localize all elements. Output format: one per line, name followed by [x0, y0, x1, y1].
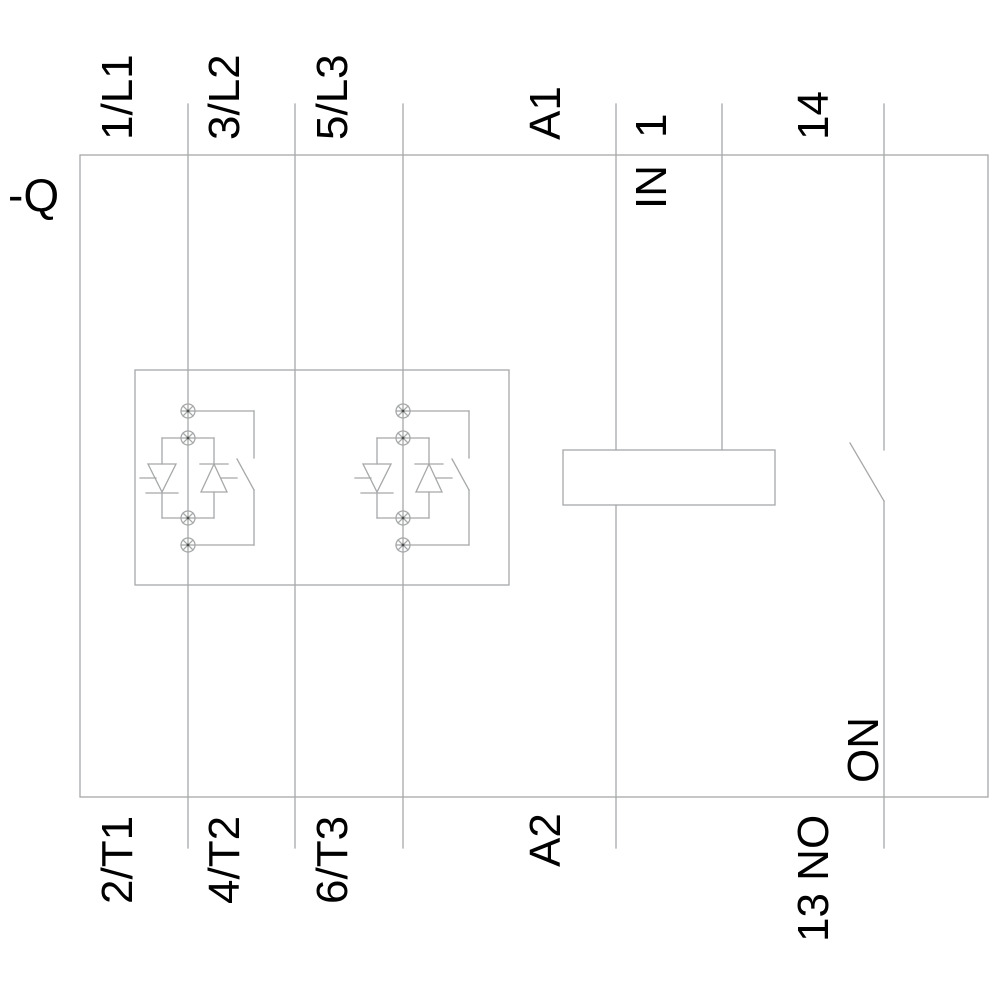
function-label-on: ON — [842, 717, 886, 783]
terminal-label-4t2: 4/T2 — [203, 816, 247, 904]
device-designation-label: -Q — [8, 172, 59, 218]
terminal-label-14: 14 — [792, 91, 836, 140]
terminal-label-5l3: 5/L3 — [311, 54, 355, 140]
control-block — [563, 450, 775, 505]
terminal-label-a2: A2 — [524, 813, 568, 867]
thyristor-module-phase3 — [355, 404, 469, 552]
terminal-label-2t1: 2/T1 — [96, 816, 140, 904]
terminal-label-3l2: 3/L2 — [203, 54, 247, 140]
device-outline — [80, 155, 988, 797]
function-label-in: IN — [630, 165, 674, 209]
schematic-page: -Q 1/L1 3/L2 5/L3 A1 1 14 IN ON 2/T1 4/T… — [0, 0, 1000, 1000]
thyristor-enclosure — [135, 370, 509, 585]
terminal-label-a1: A1 — [524, 86, 568, 140]
wiring-diagram — [0, 0, 1000, 1000]
terminal-label-13no: 13 NO — [792, 815, 836, 942]
thyristor-module-phase1 — [140, 404, 254, 552]
terminal-label-1l1: 1/L1 — [96, 54, 140, 140]
terminal-label-6t3: 6/T3 — [311, 816, 355, 904]
terminal-label-input-1: 1 — [630, 114, 674, 138]
